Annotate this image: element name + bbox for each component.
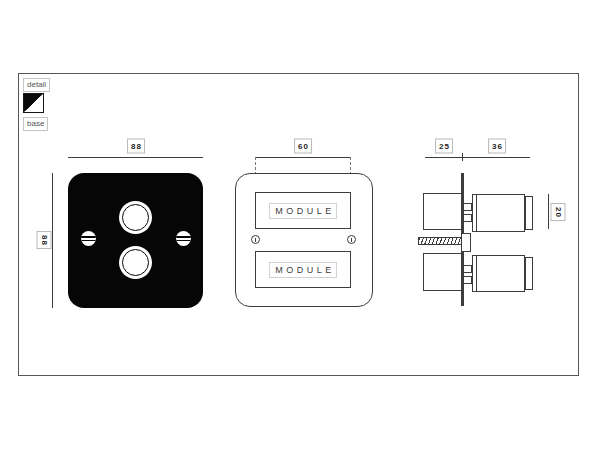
knob-shaft-top-a [463, 203, 472, 211]
dim-label-plate-height: 88 [37, 231, 52, 249]
module-body-top [423, 193, 462, 230]
detail-base-swatch-icon [23, 93, 44, 113]
screw-slot [176, 240, 191, 242]
knob-body-top [472, 194, 525, 232]
dim-label-module-width: 60 [294, 139, 312, 154]
module-body-bottom [423, 253, 462, 291]
module-slot-bottom: MODULE [255, 251, 351, 288]
screw-right-icon [176, 231, 191, 246]
legend-detail-label: detail [23, 78, 50, 92]
dim-label-plate-width: 88 [127, 139, 145, 154]
knob-shaft-bottom-a [463, 265, 472, 273]
fixing-screw-icon [418, 237, 462, 245]
dimmer-knob-top-icon [119, 201, 152, 234]
knob-ring [122, 204, 149, 231]
knob-body-bottom [472, 255, 525, 292]
knob-cap-bottom [525, 257, 533, 290]
knob-ring [122, 249, 149, 276]
knob-shaft-top-b [463, 214, 472, 222]
screw-slot [81, 236, 96, 238]
technical-drawing-page: detail base 88 88 60 MODULE [0, 0, 600, 450]
knob-flange [476, 256, 477, 291]
screw-slot [81, 240, 96, 242]
knob-shaft-bottom-b [463, 276, 472, 284]
module-label-top: MODULE [269, 203, 337, 219]
dim-line-module-width [256, 157, 351, 158]
dim-line-plate-height [52, 173, 53, 308]
module-label-bottom: MODULE [269, 262, 337, 278]
screw-hole-left-icon [251, 235, 260, 244]
module-slot-top: MODULE [255, 192, 351, 229]
dim-line-knob-height [548, 194, 549, 229]
screw-slot [176, 236, 191, 238]
dim-line-plate-width [68, 157, 203, 158]
screw-slot [351, 238, 352, 242]
screw-slot [255, 238, 256, 242]
knob-flange [476, 195, 477, 231]
dim-label-depth-front: 36 [488, 139, 506, 154]
screw-bush [461, 233, 471, 252]
dimmer-knob-bottom-icon [119, 246, 152, 279]
dim-label-knob-height: 20 [551, 203, 566, 221]
screw-left-icon [81, 231, 96, 246]
dim-label-depth-back: 25 [435, 139, 453, 154]
screw-hole-right-icon [347, 235, 356, 244]
legend-base-label: base [23, 117, 48, 131]
dim-line-depth [425, 157, 530, 158]
knob-cap-top [525, 196, 533, 230]
dim-tick-plate [462, 153, 463, 161]
